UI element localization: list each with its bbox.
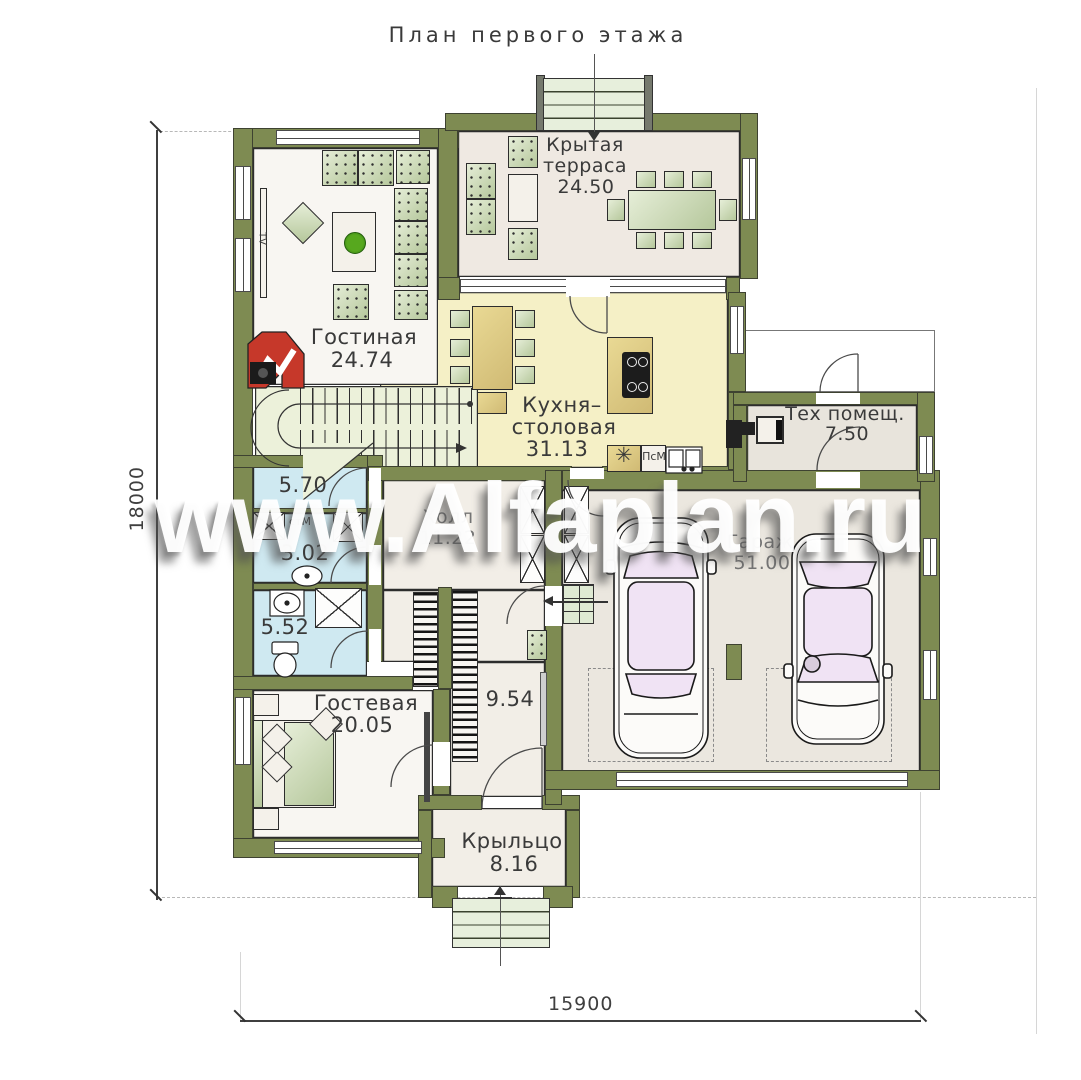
washer-label: стМ xyxy=(289,516,311,528)
room-area-porch: 8.16 xyxy=(490,853,539,875)
room-label-porch: Крыльцо xyxy=(461,830,562,852)
room-label-kitchen: столовая xyxy=(512,416,617,438)
dimension-height: 18000 xyxy=(126,466,148,531)
room-label-terrace: терраса xyxy=(543,157,627,177)
room-label-garage: Гараж xyxy=(727,533,794,553)
entry-arrow-icon xyxy=(494,886,506,895)
dishwasher-label: ПсМ xyxy=(642,451,666,463)
room-area-kitchen: 31.13 xyxy=(526,438,589,460)
room-area-garage: 51.00 xyxy=(734,554,791,574)
room-label-hall: Холл xyxy=(423,508,474,528)
room-area-tech: 7.50 xyxy=(825,425,869,445)
page-title: План первого этажа xyxy=(389,24,688,46)
dimension-line-horizontal xyxy=(240,1020,921,1022)
tv-label: TV xyxy=(256,232,267,245)
room-label-living: Гостиная xyxy=(311,326,417,348)
room-area-bathroom: 5.52 xyxy=(261,616,310,638)
floor-plan: План первого этажа xyxy=(0,0,1081,1080)
car xyxy=(606,518,716,758)
room-area-living: 24.74 xyxy=(331,349,394,371)
car xyxy=(784,534,892,744)
entry-arrow-icon xyxy=(543,596,553,606)
room-area-laundry: 5.70 xyxy=(279,474,328,496)
room-label-tech: Тех помещ. xyxy=(785,405,905,425)
room-label-guest: Гостевая xyxy=(314,692,418,714)
vector-overlay xyxy=(0,0,1081,1080)
fireplace xyxy=(248,332,304,388)
room-area-guest: 20.05 xyxy=(331,714,394,736)
dimension-line-vertical xyxy=(156,130,158,900)
room-area-hall: 11.22 xyxy=(420,529,477,549)
stove-symbol: ✳ xyxy=(615,444,633,466)
room-label-kitchen: Кухня– xyxy=(522,394,602,416)
dimension-width: 15900 xyxy=(548,993,613,1015)
room-area-corridor: 9.54 xyxy=(486,688,535,710)
room-area-wc: 3.02 xyxy=(281,542,330,564)
room-area-terrace: 24.50 xyxy=(558,178,615,198)
room-label-terrace: Крытая xyxy=(546,136,624,156)
